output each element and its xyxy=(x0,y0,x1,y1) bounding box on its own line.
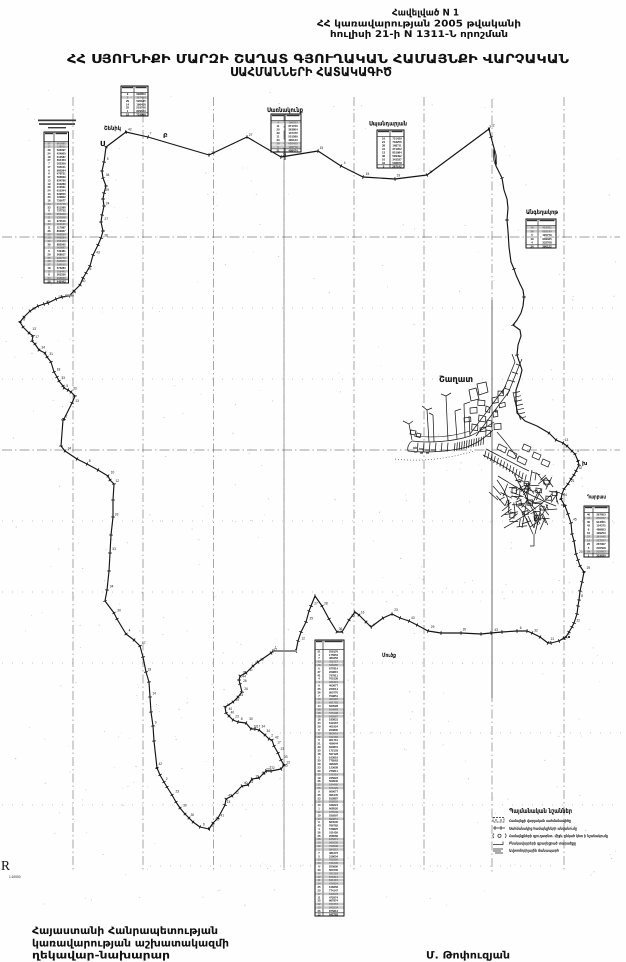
svg-text:15: 15 xyxy=(366,172,370,176)
svg-text:32: 32 xyxy=(579,466,583,470)
svg-text:815887: 815887 xyxy=(329,796,338,800)
svg-text:27: 27 xyxy=(105,217,109,221)
svg-text:34: 34 xyxy=(267,729,271,733)
svg-text:974516: 974516 xyxy=(57,219,66,223)
svg-text:41: 41 xyxy=(318,673,321,677)
svg-text:774147: 774147 xyxy=(329,889,338,893)
svg-text:40: 40 xyxy=(231,710,235,714)
svg-text:29: 29 xyxy=(431,625,435,629)
svg-text:36: 36 xyxy=(318,793,321,797)
svg-text:803967: 803967 xyxy=(57,229,66,233)
svg-text:566839: 566839 xyxy=(57,175,66,179)
svg-text:20: 20 xyxy=(318,889,321,893)
svg-text:24: 24 xyxy=(106,201,110,205)
svg-text:42: 42 xyxy=(128,128,132,132)
svg-text:45: 45 xyxy=(573,517,577,521)
svg-text:620528: 620528 xyxy=(329,704,338,708)
svg-text:13: 13 xyxy=(565,438,569,442)
svg-text:19: 19 xyxy=(397,173,401,177)
svg-text:42: 42 xyxy=(235,791,239,795)
svg-text:43: 43 xyxy=(46,300,50,304)
svg-text:15: 15 xyxy=(255,774,259,778)
svg-text:7: 7 xyxy=(66,415,68,419)
svg-text:8: 8 xyxy=(241,717,243,721)
svg-text:23: 23 xyxy=(394,608,398,612)
svg-text:41: 41 xyxy=(221,814,225,818)
svg-text:610344: 610344 xyxy=(57,189,66,193)
svg-text:35: 35 xyxy=(260,658,264,662)
svg-text:17: 17 xyxy=(257,724,261,728)
svg-text:5: 5 xyxy=(66,384,68,388)
svg-text:14: 14 xyxy=(152,691,156,695)
svg-text:6: 6 xyxy=(211,824,213,828)
svg-text:14: 14 xyxy=(240,693,244,697)
svg-text:603730: 603730 xyxy=(329,868,338,872)
svg-text:19: 19 xyxy=(318,776,321,780)
svg-text:26: 26 xyxy=(88,267,92,271)
svg-text:24: 24 xyxy=(48,189,51,193)
svg-text:318054: 318054 xyxy=(329,854,338,858)
svg-text:29: 29 xyxy=(318,762,321,766)
svg-text:16: 16 xyxy=(318,718,321,722)
svg-text:23: 23 xyxy=(235,715,239,719)
svg-text:824035: 824035 xyxy=(329,820,338,824)
svg-text:17: 17 xyxy=(48,165,51,169)
svg-text:33: 33 xyxy=(148,668,152,672)
svg-text:9: 9 xyxy=(155,721,157,725)
svg-text:8: 8 xyxy=(23,318,25,322)
svg-text:27: 27 xyxy=(249,133,253,137)
svg-text:619167: 619167 xyxy=(329,721,338,725)
svg-text:481272: 481272 xyxy=(329,851,338,855)
svg-text:1:10000: 1:10000 xyxy=(9,875,21,879)
svg-text:33: 33 xyxy=(115,513,119,517)
svg-text:2: 2 xyxy=(271,734,273,738)
svg-text:483452: 483452 xyxy=(329,656,338,660)
svg-text:43: 43 xyxy=(32,306,36,310)
svg-text:276211: 276211 xyxy=(329,769,338,773)
svg-text:14: 14 xyxy=(318,704,321,708)
svg-text:17: 17 xyxy=(274,648,278,652)
svg-text:185831: 185831 xyxy=(329,718,338,722)
svg-text:13: 13 xyxy=(32,327,36,331)
svg-text:18: 18 xyxy=(48,155,51,159)
svg-text:795101: 795101 xyxy=(57,165,66,169)
svg-text:578825: 578825 xyxy=(329,827,338,831)
svg-text:43: 43 xyxy=(228,794,232,798)
svg-text:29: 29 xyxy=(318,725,321,729)
svg-text:16: 16 xyxy=(48,199,51,203)
svg-text:391945: 391945 xyxy=(329,793,338,797)
svg-text:23: 23 xyxy=(318,769,321,773)
svg-text:22: 22 xyxy=(577,619,581,623)
svg-text:29: 29 xyxy=(587,566,591,570)
svg-text:9: 9 xyxy=(255,661,257,665)
svg-text:17: 17 xyxy=(142,641,146,645)
svg-text:30: 30 xyxy=(191,813,195,817)
svg-text:24: 24 xyxy=(563,493,567,497)
svg-text:39: 39 xyxy=(318,745,321,749)
svg-text:23: 23 xyxy=(266,768,270,772)
svg-text:43: 43 xyxy=(411,616,415,620)
svg-text:33: 33 xyxy=(284,755,288,759)
svg-text:27: 27 xyxy=(48,158,51,162)
svg-text:13: 13 xyxy=(75,399,79,403)
svg-text:811580: 811580 xyxy=(57,205,66,209)
svg-text:22: 22 xyxy=(250,780,254,784)
svg-text:593097: 593097 xyxy=(57,148,66,152)
svg-text:597128: 597128 xyxy=(329,752,338,756)
svg-text:42: 42 xyxy=(159,762,163,766)
svg-text:29: 29 xyxy=(106,188,110,192)
svg-text:40: 40 xyxy=(249,668,253,672)
svg-text:3: 3 xyxy=(568,632,570,636)
svg-text:955770: 955770 xyxy=(329,690,338,694)
svg-text:16: 16 xyxy=(361,610,365,614)
svg-text:34: 34 xyxy=(42,346,46,350)
svg-text:33: 33 xyxy=(112,547,116,551)
svg-text:10: 10 xyxy=(318,813,321,817)
svg-text:5: 5 xyxy=(577,449,579,453)
svg-text:35: 35 xyxy=(318,687,321,691)
svg-text:26: 26 xyxy=(318,834,321,838)
svg-text:667874: 667874 xyxy=(329,899,338,903)
svg-text:26: 26 xyxy=(318,909,321,913)
svg-text:31: 31 xyxy=(270,765,274,769)
svg-text:20: 20 xyxy=(318,759,321,763)
svg-text:13: 13 xyxy=(227,800,231,804)
svg-text:38: 38 xyxy=(48,148,51,152)
svg-text:8: 8 xyxy=(581,594,583,598)
svg-text:677814: 677814 xyxy=(329,667,338,671)
svg-text:34: 34 xyxy=(110,584,114,588)
svg-text:129802: 129802 xyxy=(57,195,66,199)
svg-text:8: 8 xyxy=(89,459,91,463)
svg-text:33: 33 xyxy=(48,205,51,209)
svg-text:44: 44 xyxy=(242,674,246,678)
svg-text:31: 31 xyxy=(49,352,53,356)
svg-text:4: 4 xyxy=(129,628,131,632)
svg-text:163616: 163616 xyxy=(329,755,338,759)
svg-text:17: 17 xyxy=(277,741,281,745)
svg-text:901710: 901710 xyxy=(329,738,338,742)
svg-text:30: 30 xyxy=(249,717,253,721)
svg-text:223800: 223800 xyxy=(329,728,338,732)
svg-text:4: 4 xyxy=(344,161,346,165)
svg-text:15: 15 xyxy=(284,763,288,767)
svg-text:456644: 456644 xyxy=(329,742,338,746)
svg-text:13: 13 xyxy=(48,178,51,182)
svg-text:35: 35 xyxy=(318,885,321,889)
svg-text:30: 30 xyxy=(82,279,86,283)
svg-text:4: 4 xyxy=(373,623,375,627)
svg-text:6: 6 xyxy=(520,626,522,630)
svg-text:757911: 757911 xyxy=(329,673,338,677)
svg-text:43: 43 xyxy=(96,251,100,255)
svg-text:709851: 709851 xyxy=(329,694,338,698)
svg-text:17: 17 xyxy=(48,175,51,179)
svg-text:36: 36 xyxy=(318,830,321,834)
svg-text:2: 2 xyxy=(273,766,275,770)
svg-text:985294: 985294 xyxy=(57,168,66,172)
svg-text:33: 33 xyxy=(73,387,77,391)
svg-text:705136: 705136 xyxy=(329,677,338,681)
svg-text:20: 20 xyxy=(579,550,583,554)
svg-text:27: 27 xyxy=(314,601,318,605)
svg-text:21: 21 xyxy=(318,742,321,746)
svg-text:15: 15 xyxy=(320,146,324,150)
svg-text:36: 36 xyxy=(562,637,566,641)
svg-text:223514: 223514 xyxy=(329,687,338,691)
svg-text:28: 28 xyxy=(104,234,108,238)
svg-text:12: 12 xyxy=(116,479,120,483)
svg-text:2: 2 xyxy=(166,777,168,781)
svg-text:33: 33 xyxy=(211,151,215,155)
svg-text:511439: 511439 xyxy=(329,830,338,834)
svg-text:33: 33 xyxy=(48,195,51,199)
svg-text:472974: 472974 xyxy=(329,895,338,899)
svg-text:12: 12 xyxy=(491,123,495,127)
svg-text:573283: 573283 xyxy=(57,266,66,270)
svg-text:875813: 875813 xyxy=(329,909,338,913)
svg-text:30: 30 xyxy=(318,748,321,752)
svg-text:310631: 310631 xyxy=(57,185,66,189)
svg-text:343224: 343224 xyxy=(329,803,338,807)
svg-text:26: 26 xyxy=(243,679,247,683)
svg-text:26: 26 xyxy=(318,779,321,783)
svg-text:620801: 620801 xyxy=(329,745,338,749)
svg-text:117887: 117887 xyxy=(57,226,66,230)
svg-text:778563: 778563 xyxy=(329,759,338,763)
svg-text:172103: 172103 xyxy=(329,748,338,752)
svg-text:5: 5 xyxy=(107,157,109,161)
svg-text:23: 23 xyxy=(318,766,321,770)
svg-text:608520: 608520 xyxy=(329,807,338,811)
svg-text:38: 38 xyxy=(48,185,51,189)
svg-text:123658: 123658 xyxy=(329,766,338,770)
svg-text:25: 25 xyxy=(310,617,314,621)
svg-text:30: 30 xyxy=(318,868,321,872)
svg-text:28: 28 xyxy=(324,602,328,606)
svg-text:17: 17 xyxy=(35,335,39,339)
svg-text:23: 23 xyxy=(318,796,321,800)
svg-text:128356: 128356 xyxy=(329,885,338,889)
svg-text:664453: 664453 xyxy=(57,158,66,162)
svg-text:509940: 509940 xyxy=(329,779,338,783)
svg-text:39: 39 xyxy=(235,698,239,702)
svg-text:40: 40 xyxy=(318,824,321,828)
svg-text:18: 18 xyxy=(57,368,61,372)
svg-text:34: 34 xyxy=(262,725,266,729)
svg-text:23: 23 xyxy=(281,747,285,751)
svg-text:403677: 403677 xyxy=(329,684,338,688)
svg-text:34: 34 xyxy=(318,721,321,725)
svg-text:21: 21 xyxy=(551,637,555,641)
svg-text:737752: 737752 xyxy=(57,209,66,213)
svg-text:9: 9 xyxy=(203,823,205,827)
svg-text:220956: 220956 xyxy=(329,865,338,869)
svg-text:612587: 612587 xyxy=(57,155,66,159)
svg-text:12: 12 xyxy=(301,637,305,641)
svg-text:23: 23 xyxy=(261,772,265,776)
svg-text:26: 26 xyxy=(244,687,248,691)
svg-text:401924: 401924 xyxy=(329,725,338,729)
svg-text:30: 30 xyxy=(117,608,121,612)
svg-text:36: 36 xyxy=(318,690,321,694)
svg-text:24: 24 xyxy=(72,291,76,295)
svg-text:730977: 730977 xyxy=(57,199,66,203)
svg-text:398420: 398420 xyxy=(329,762,338,766)
svg-text:786782: 786782 xyxy=(329,824,338,828)
svg-text:834786: 834786 xyxy=(57,178,66,182)
svg-text:37: 37 xyxy=(318,670,321,674)
svg-text:36: 36 xyxy=(48,229,51,233)
svg-text:42: 42 xyxy=(275,735,279,739)
svg-text:26: 26 xyxy=(215,817,219,821)
svg-text:7: 7 xyxy=(150,131,152,135)
svg-text:18: 18 xyxy=(318,752,321,756)
svg-text:10: 10 xyxy=(111,470,115,474)
svg-text:40: 40 xyxy=(244,781,248,785)
svg-text:20: 20 xyxy=(463,628,467,632)
svg-text:10: 10 xyxy=(58,295,62,299)
svg-text:33: 33 xyxy=(61,376,65,380)
svg-text:32: 32 xyxy=(351,614,355,618)
svg-text:539297: 539297 xyxy=(329,813,338,817)
svg-text:23: 23 xyxy=(176,790,180,794)
svg-text:258176: 258176 xyxy=(329,649,338,653)
svg-text:959077: 959077 xyxy=(329,789,338,793)
svg-text:208566: 208566 xyxy=(329,834,338,838)
svg-text:43: 43 xyxy=(494,628,498,632)
svg-text:35: 35 xyxy=(318,899,321,903)
svg-text:14: 14 xyxy=(48,219,51,223)
svg-text:32: 32 xyxy=(534,628,538,632)
svg-text:18: 18 xyxy=(48,266,51,270)
svg-text:39: 39 xyxy=(183,804,187,808)
svg-text:37: 37 xyxy=(429,170,433,174)
svg-text:229815: 229815 xyxy=(329,670,338,674)
svg-text:21: 21 xyxy=(571,479,575,483)
svg-text:28: 28 xyxy=(283,153,287,157)
svg-text:175954: 175954 xyxy=(329,653,338,657)
svg-text:34: 34 xyxy=(68,446,72,450)
svg-text:36: 36 xyxy=(339,627,343,631)
svg-text:10: 10 xyxy=(318,803,321,807)
svg-text:21: 21 xyxy=(318,649,321,653)
svg-text:235623: 235623 xyxy=(329,776,338,780)
svg-text:34: 34 xyxy=(106,173,110,177)
svg-text:R: R xyxy=(1,858,10,873)
svg-text:732481: 732481 xyxy=(57,249,66,253)
